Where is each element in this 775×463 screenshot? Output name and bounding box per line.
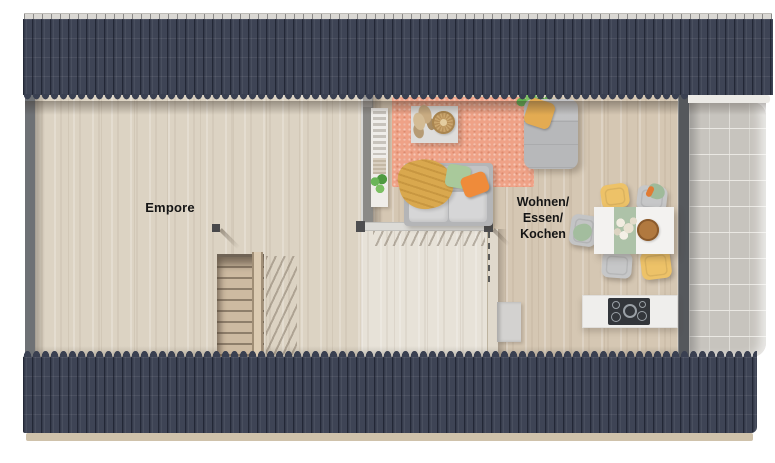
wall-shadow — [689, 102, 701, 357]
railing-shadow-hatch — [266, 256, 297, 355]
floor-plan: Empore Wohnen/ Essen/ Kochen — [0, 0, 775, 463]
eave-strip — [26, 433, 753, 441]
room-label-living: Wohnen/ Essen/ Kochen — [495, 194, 591, 242]
roof-tile-edge — [23, 94, 688, 102]
burner-ring — [639, 301, 646, 308]
roof-bottom — [23, 357, 757, 433]
tray-center — [440, 119, 447, 126]
burner-ring — [637, 311, 647, 321]
stair-railing — [252, 252, 263, 357]
burner-ring — [611, 312, 621, 322]
room-label-line: Essen/ — [495, 210, 591, 226]
roof-top — [23, 19, 773, 95]
landing-floor — [361, 227, 488, 357]
books — [373, 111, 386, 155]
roof-fascia — [688, 95, 770, 103]
gable-wall-left — [25, 95, 35, 357]
shelf-plant — [369, 172, 389, 196]
room-label-line: Kochen — [495, 226, 591, 242]
room-label-line: Wohnen/ — [495, 194, 591, 210]
balcony-wall — [678, 95, 689, 357]
railing-shadow-hatch — [373, 231, 485, 246]
roof-shadow — [25, 101, 678, 115]
dining-chair-yellow — [599, 182, 630, 210]
railing-post — [356, 221, 365, 232]
food-plate — [637, 219, 659, 241]
burner-ring — [612, 301, 620, 309]
wall-shadow — [35, 95, 45, 357]
empore-floor — [35, 95, 361, 357]
burner-ring — [623, 304, 637, 318]
cooktop — [608, 298, 650, 325]
roof-shadow — [689, 103, 766, 115]
room-label-empore: Empore — [125, 200, 215, 215]
dining-chair-gray — [601, 251, 633, 279]
roof-tile-edge — [23, 349, 757, 357]
bookshelf — [371, 108, 388, 207]
tall-cabinet — [497, 302, 521, 342]
wall-opening-dashed-line — [488, 232, 490, 282]
